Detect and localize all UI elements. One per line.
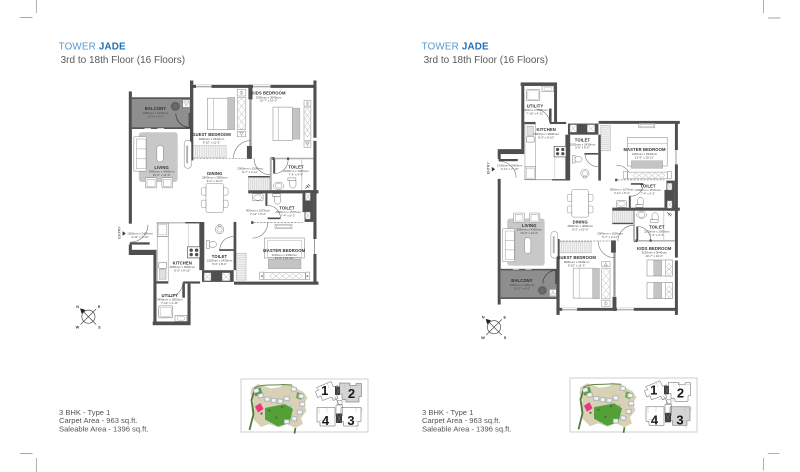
svg-text:9'-2" x 10'-0": 9'-2" x 10'-0"	[207, 179, 223, 183]
svg-text:3rd to 18th Floor (16 Floors): 3rd to 18th Floor (16 Floors)	[424, 55, 548, 66]
svg-text:10'-7" x 10'-0": 10'-7" x 10'-0"	[260, 99, 278, 103]
svg-text:7'-10" x 4'-11": 7'-10" x 4'-11"	[161, 301, 179, 305]
svg-text:1: 1	[321, 383, 328, 398]
svg-text:W: W	[76, 326, 80, 330]
svg-text:5'-0" x 8'-0": 5'-0" x 8'-0"	[575, 146, 590, 150]
svg-text:4: 4	[322, 413, 330, 428]
svg-text:10'-0" x 14'-0": 10'-0" x 14'-0"	[520, 231, 538, 235]
svg-text:8'-5" x 9'-10": 8'-5" x 9'-10"	[174, 269, 190, 273]
svg-text:3: 3	[347, 413, 354, 428]
svg-text:1: 1	[650, 383, 657, 398]
svg-text:3'-11" x 7'-10": 3'-11" x 7'-10"	[501, 167, 519, 171]
svg-text:3'-11" x 7'-10": 3'-11" x 7'-10"	[131, 235, 149, 239]
svg-text:4: 4	[651, 413, 659, 428]
svg-text:TOWER JADE: TOWER JADE	[422, 42, 489, 53]
svg-text:Saleable Area - 1396 sq.ft.: Saleable Area - 1396 sq.ft.	[59, 424, 149, 433]
svg-text:9'-10" x 11'-3": 9'-10" x 11'-3"	[203, 140, 221, 144]
svg-text:10'-0" x 14'-0": 10'-0" x 14'-0"	[153, 173, 171, 177]
svg-text:S: S	[504, 336, 507, 340]
svg-text:10'-0" x 4'-5": 10'-0" x 4'-5"	[514, 287, 530, 291]
svg-text:W: W	[481, 336, 485, 340]
svg-text:E: E	[504, 316, 507, 320]
svg-text:7'-4" x 4'-3": 7'-4" x 4'-3"	[650, 233, 665, 237]
svg-text:6'-7" x 4'-11": 6'-7" x 4'-11"	[242, 170, 258, 174]
svg-text:ENTRY: ENTRY	[117, 226, 121, 239]
svg-text:13'-6" x 10'-11": 13'-6" x 10'-11"	[635, 155, 654, 159]
svg-text:3rd to 18th Floor (16 Floors): 3rd to 18th Floor (16 Floors)	[61, 55, 186, 66]
svg-text:ENTRY: ENTRY	[487, 162, 491, 175]
svg-text:2: 2	[348, 386, 355, 401]
svg-text:7'-10" x 4'-11": 7'-10" x 4'-11"	[526, 111, 544, 115]
svg-text:3: 3	[676, 413, 683, 428]
svg-text:5'-0" x 8'-0": 5'-0" x 8'-0"	[212, 262, 227, 266]
svg-text:N: N	[76, 305, 79, 309]
svg-text:7'-4" x 5'-2": 7'-4" x 5'-2"	[281, 213, 296, 217]
svg-text:7'-4" x 4'-3": 7'-4" x 4'-3"	[289, 173, 304, 177]
svg-text:Saleable Area - 1396 sq.ft.: Saleable Area - 1396 sq.ft.	[422, 424, 512, 433]
svg-text:10'-0" x 4'-5": 10'-0" x 4'-5"	[147, 115, 163, 119]
svg-text:6'-7" x 4'-11": 6'-7" x 4'-11"	[602, 235, 618, 239]
svg-text:13'-6" x 10'-11": 13'-6" x 10'-11"	[275, 256, 294, 260]
svg-text:8'-5" x 9'-10": 8'-5" x 9'-10"	[538, 135, 554, 139]
svg-text:7'-4" x 5'-2": 7'-4" x 5'-2"	[641, 191, 656, 195]
svg-text:9'-10" x 11'-3": 9'-10" x 11'-3"	[568, 263, 586, 267]
svg-text:S: S	[98, 326, 101, 330]
svg-text:9'-2" x 10'-0": 9'-2" x 10'-0"	[572, 228, 588, 232]
svg-text:2'-11" x 5'-2": 2'-11" x 5'-2"	[614, 191, 630, 195]
svg-text:10'-7" x 10'-0": 10'-7" x 10'-0"	[645, 254, 663, 258]
svg-text:E: E	[98, 305, 101, 309]
svg-text:TOWER JADE: TOWER JADE	[59, 42, 126, 53]
svg-text:N: N	[482, 316, 485, 320]
svg-text:2: 2	[677, 386, 684, 401]
svg-text:2'-11" x 5'-2": 2'-11" x 5'-2"	[250, 212, 266, 216]
